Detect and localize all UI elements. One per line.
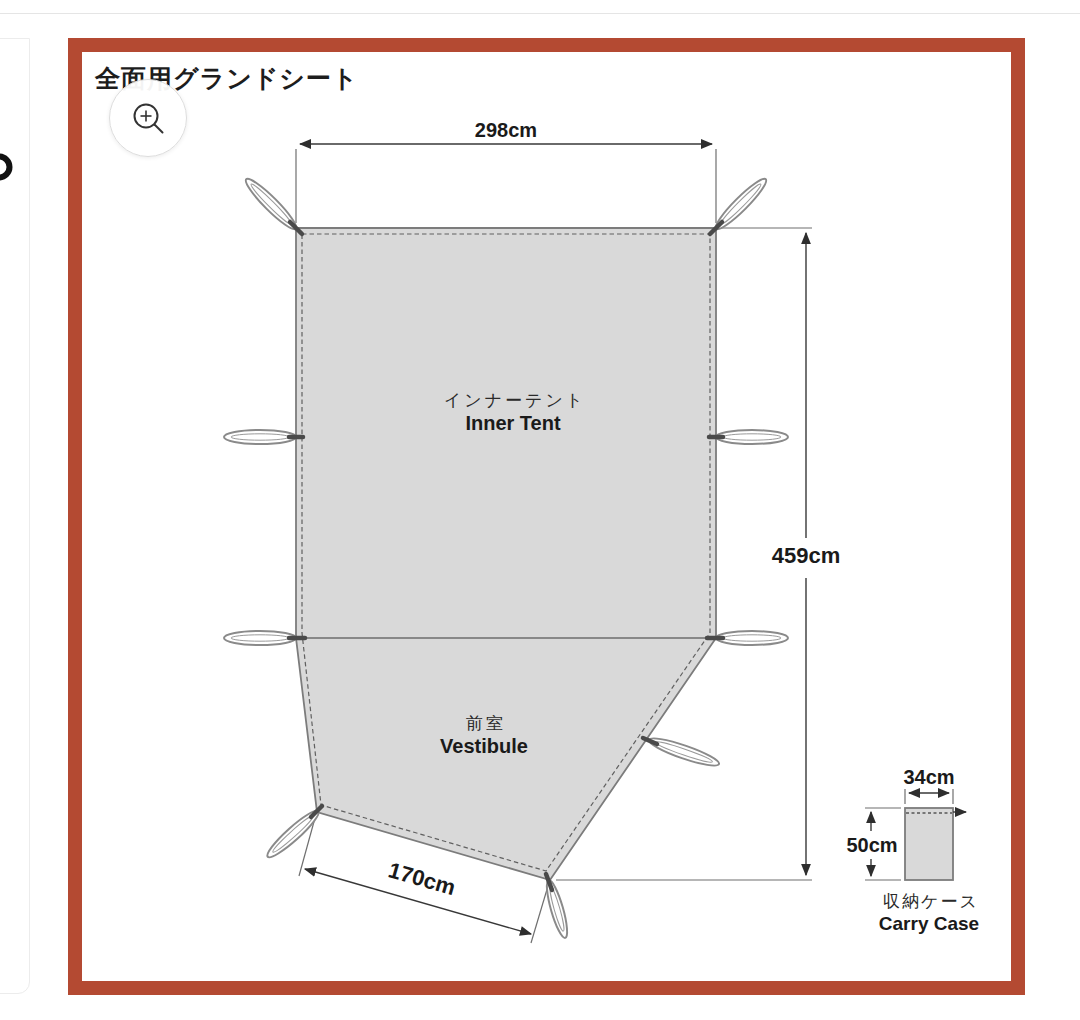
product-image-frame[interactable] xyxy=(68,38,1025,995)
page-top-divider xyxy=(0,13,1080,14)
side-panel-edge xyxy=(0,38,30,994)
zoom-button[interactable] xyxy=(109,79,187,157)
magnifier-plus-icon xyxy=(127,97,169,139)
page-root: 全面用グランドシート 298cm 459cm xyxy=(0,0,1080,1020)
